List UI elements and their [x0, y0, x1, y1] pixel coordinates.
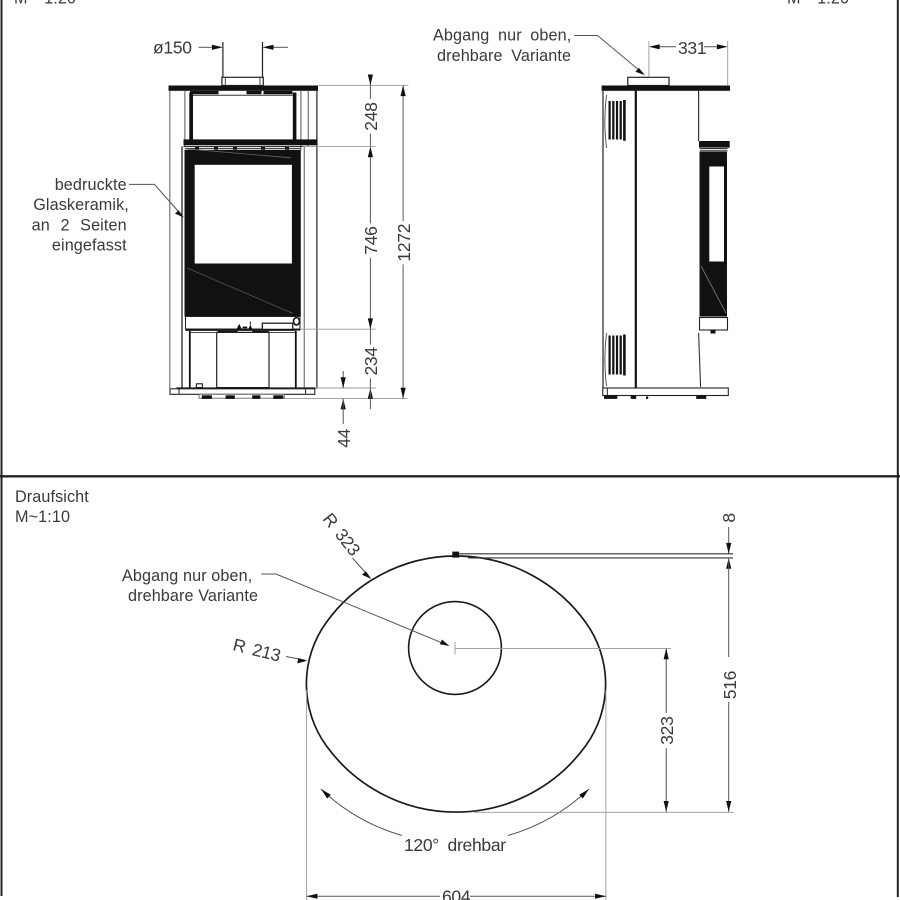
svg-text:746: 746 [361, 226, 381, 254]
svg-text:an 2 Seiten: an 2 Seiten [32, 217, 127, 235]
svg-text:M 1:20: M 1:20 [787, 0, 849, 8]
svg-text:120° drehbar: 120° drehbar [404, 835, 506, 855]
svg-text:234: 234 [361, 347, 381, 376]
svg-text:8: 8 [719, 513, 739, 522]
svg-text:drehbare Variante: drehbare Variante [128, 587, 258, 605]
svg-text:1272: 1272 [394, 224, 414, 262]
svg-text:331: 331 [678, 38, 706, 58]
svg-text:eingefasst: eingefasst [52, 237, 127, 255]
svg-text:604: 604 [442, 887, 471, 900]
svg-text:M~1:10: M~1:10 [15, 508, 70, 526]
svg-text:Glaskeramik,: Glaskeramik, [33, 196, 129, 214]
svg-text:44: 44 [334, 428, 354, 447]
svg-text:323: 323 [657, 716, 677, 744]
svg-text:248: 248 [361, 102, 381, 130]
svg-text:Abgang nur oben,: Abgang nur oben, [433, 27, 571, 45]
svg-text:ø150: ø150 [153, 38, 192, 58]
svg-text:bedruckte: bedruckte [55, 176, 127, 194]
svg-text:516: 516 [720, 671, 740, 699]
svg-text:Abgang nur oben,: Abgang nur oben, [122, 567, 252, 585]
svg-text:Draufsicht: Draufsicht [15, 488, 89, 506]
svg-text:drehbare Variante: drehbare Variante [437, 47, 571, 65]
svg-text:M 1:20: M 1:20 [14, 0, 76, 8]
